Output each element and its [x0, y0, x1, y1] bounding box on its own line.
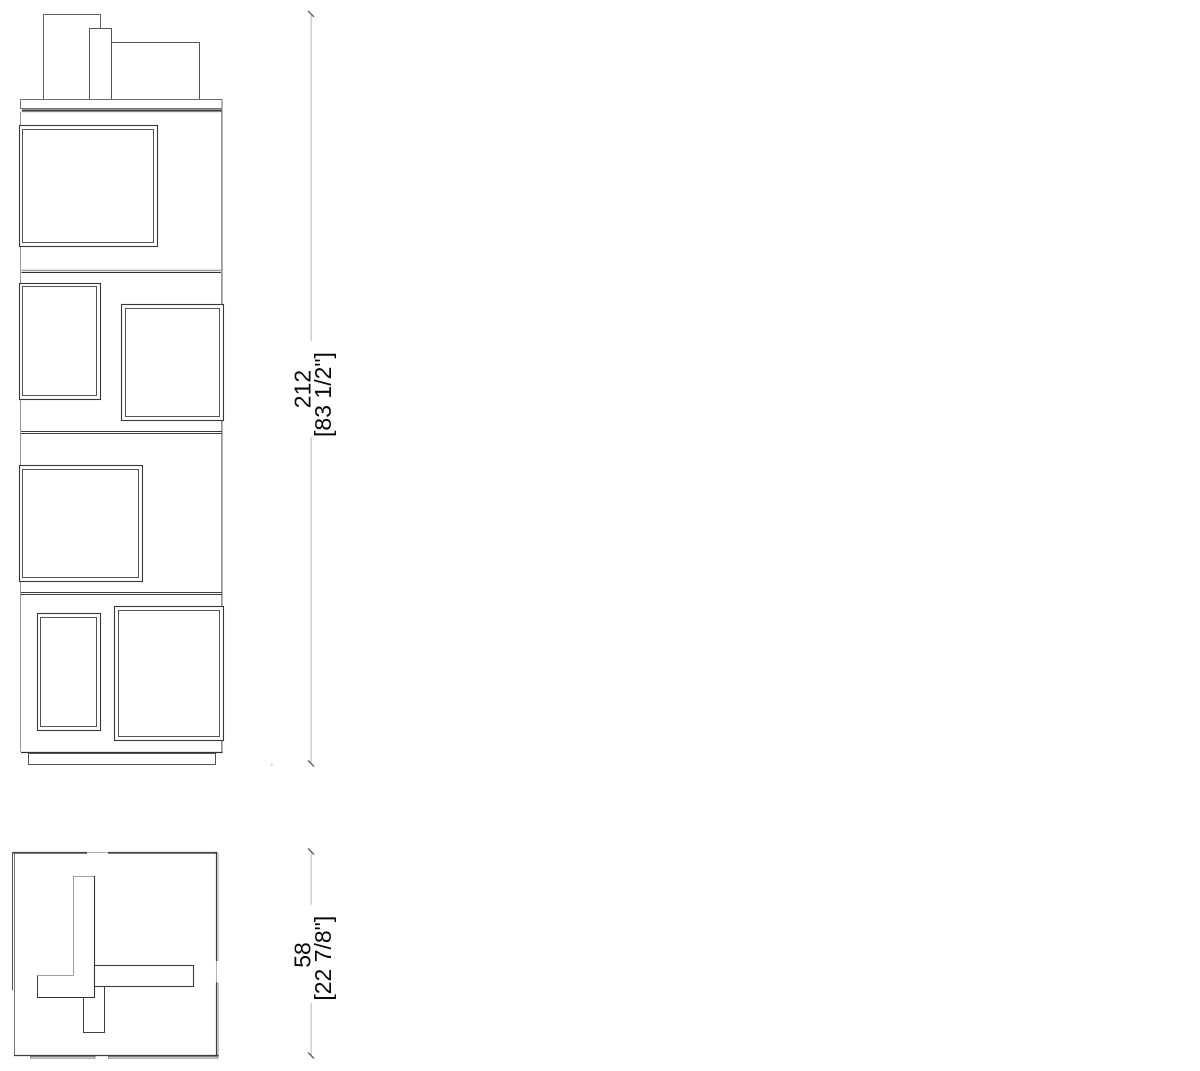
- svg-text:[22 7/8"]: [22 7/8"]: [310, 916, 336, 1001]
- svg-text:[83 1/2"]: [83 1/2"]: [310, 352, 336, 437]
